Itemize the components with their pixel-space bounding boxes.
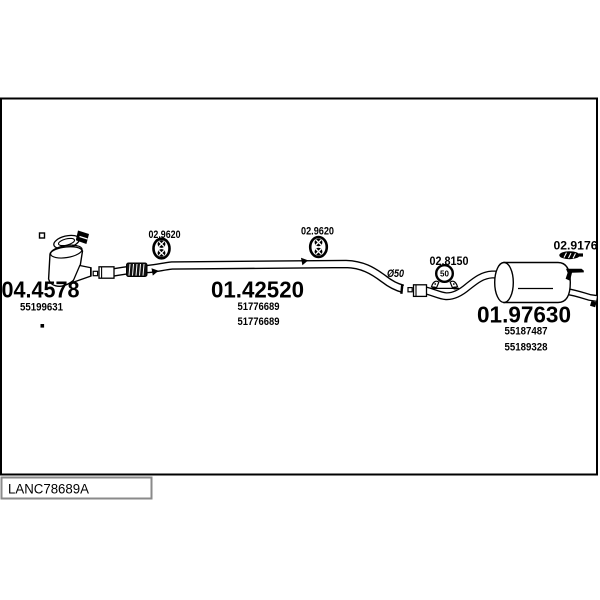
fitting-code-clamp: 02.8150	[430, 254, 469, 268]
mount-point-marker	[41, 324, 45, 328]
flex-pipe-section	[127, 263, 148, 277]
part-code-rear-silencer[interactable]: 01.97630	[477, 302, 571, 328]
fitting-code-hanger-right: 02.9620	[301, 226, 334, 238]
gasket-marker	[408, 288, 412, 292]
clamp-size-label: 50	[440, 269, 449, 278]
mount-point-marker	[40, 233, 45, 238]
part-ref-rear-silencer: 55187487	[505, 326, 548, 338]
rubber-hanger-icon	[154, 239, 170, 259]
part-ref-centre-pipe: 51776689	[238, 301, 280, 313]
exhaust-diagram-canvas: 50 02.9620 02.9620 02.8150 02.9176 Ø50 0…	[0, 0, 600, 600]
fitting-code-hanger-left: 02.9620	[149, 229, 181, 241]
footer-code-box[interactable]: LANC78689A	[2, 478, 152, 499]
pipe-flange	[401, 285, 402, 294]
silencer-end-cap	[495, 263, 514, 303]
exhaust-diagram-page: 50 02.9620 02.9620 02.8150 02.9176 Ø50 0…	[0, 0, 600, 600]
clamp-icon: 50	[431, 265, 460, 289]
part-ref-catalyst: 55199631	[20, 302, 63, 314]
part-code-catalyst[interactable]: 04.4578	[2, 277, 80, 303]
gasket-marker	[93, 271, 97, 275]
part-ref-rear-silencer: 55189328	[505, 342, 548, 354]
pipe-diameter-label: Ø50	[387, 268, 405, 280]
fitting-code-strap: 02.9176	[554, 239, 598, 253]
part-ref-centre-pipe: 51776689	[238, 316, 280, 328]
tailpipe-end-marker	[590, 301, 597, 307]
hanger-rod	[566, 269, 584, 281]
part-code-centre-pipe[interactable]: 01.42520	[211, 277, 304, 303]
rubber-hanger-icon	[310, 237, 327, 257]
footer-code-text: LANC78689A	[8, 482, 89, 497]
